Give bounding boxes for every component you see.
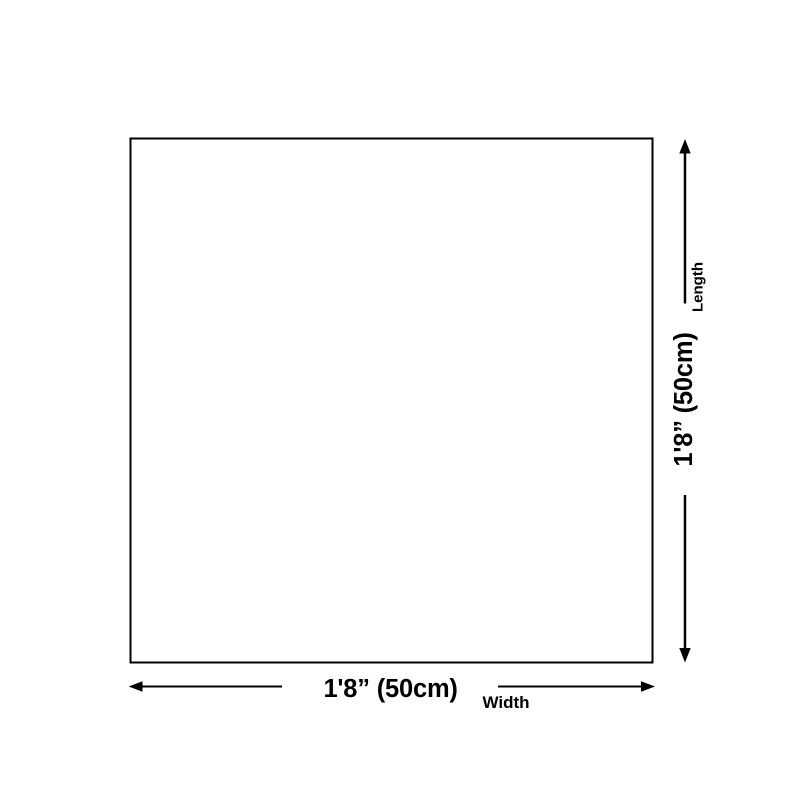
svg-text:Length: Length	[690, 262, 707, 312]
svg-text:1'8” (50cm): 1'8” (50cm)	[323, 675, 457, 703]
svg-text:Width: Width	[482, 693, 529, 712]
svg-text:1'8” (50cm): 1'8” (50cm)	[670, 332, 698, 466]
